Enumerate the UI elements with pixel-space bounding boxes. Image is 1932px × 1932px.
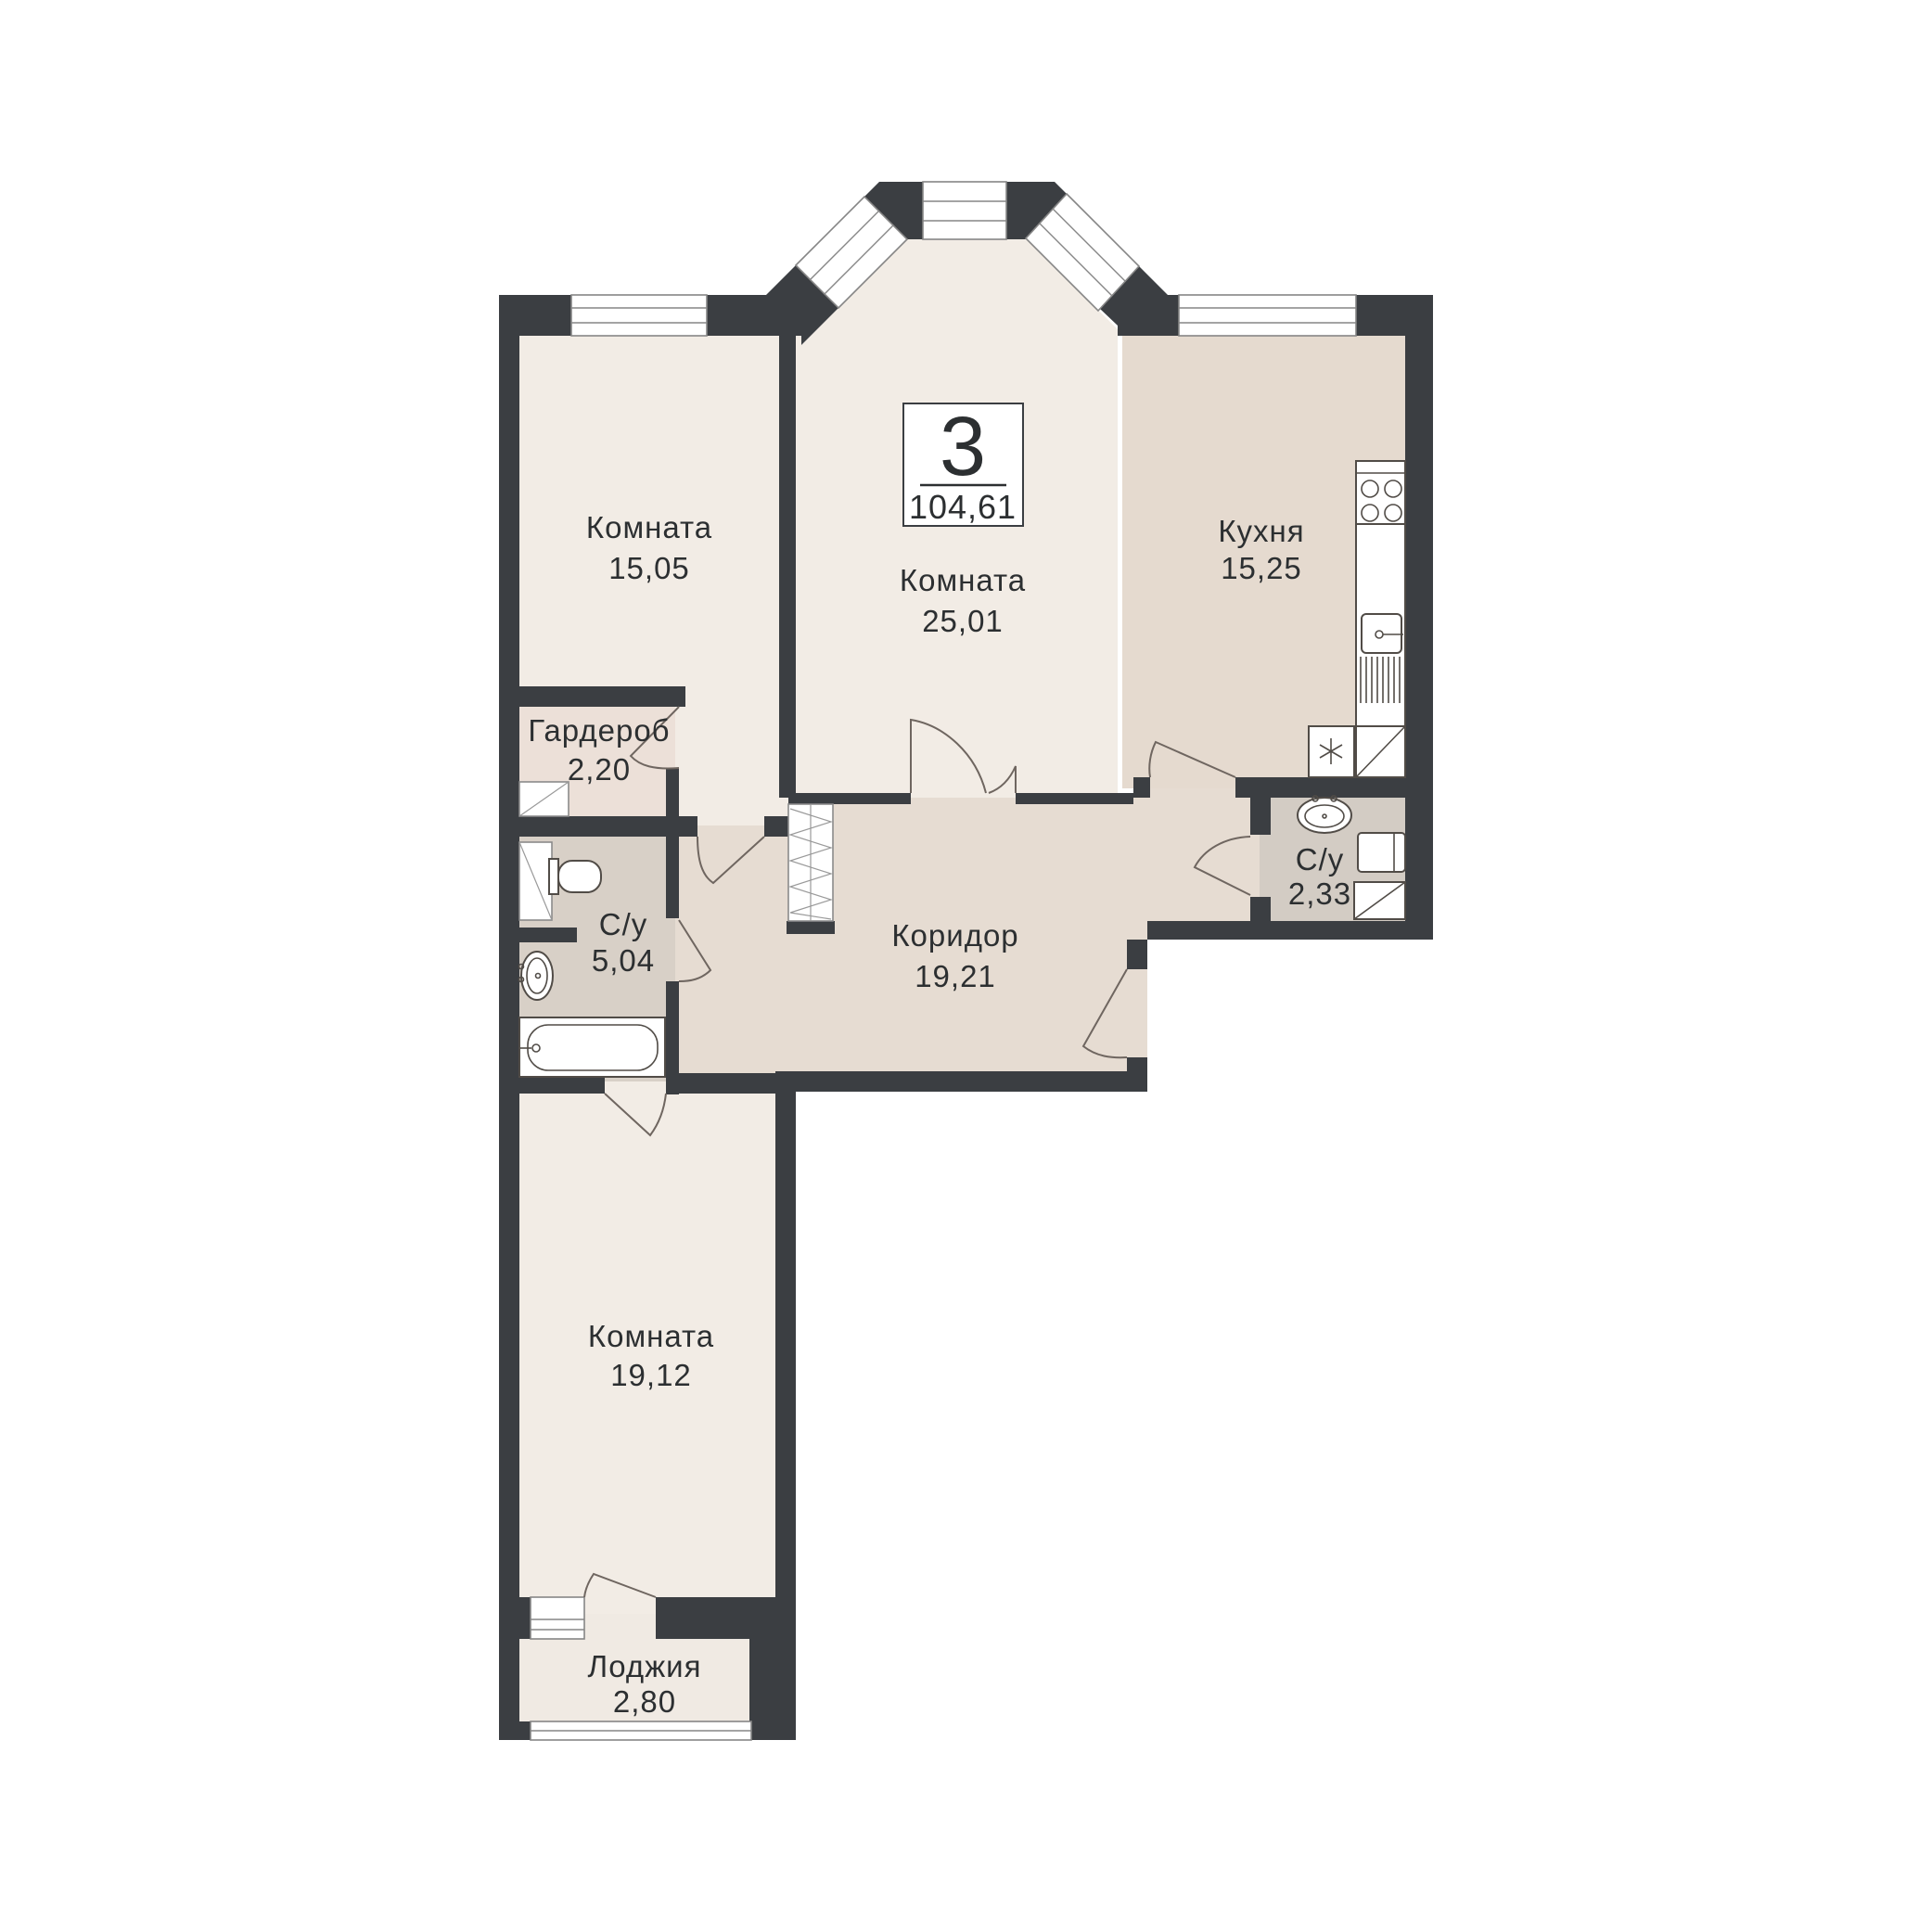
bath-main-label: С/у [599,907,648,941]
wall-stub [787,921,835,934]
unit-rooms-count: 3 [940,401,986,493]
corridor-label: Коридор [891,918,1018,953]
toilet-icon [549,859,558,894]
wall-segment [499,686,685,707]
toilet-bowl [558,861,601,892]
room-25-label: Комната [900,563,1026,597]
stove-icon [1356,461,1405,524]
wall-segment [1235,777,1433,798]
wall-segment [1016,793,1133,804]
wall-stub [518,928,577,942]
wall-segment [516,1721,531,1740]
wall-outer-right [1405,295,1433,940]
kitchen-sink-icon [1362,614,1401,653]
unit-info-box: 3 104,61 [903,401,1023,526]
floor-plan-page: 3 104,61 Комната 15,05 Комната 25,01 Кух… [0,0,1932,1932]
wall-segment [779,315,796,798]
wall-segment [1133,777,1150,798]
wall-segment [666,768,679,918]
unit-total-area: 104,61 [909,488,1017,526]
room-15-area: 15,05 [608,551,690,585]
floor-plan-canvas: 3 104,61 Комната 15,05 Комната 25,01 Кух… [0,0,1932,1932]
bath-main-area: 5,04 [592,943,655,978]
loggia-label: Лоджия [588,1649,702,1683]
washing-machine-icon [1358,833,1405,872]
wall-segment [788,793,911,804]
wall-segment [1147,921,1433,940]
room-19-label: Комната [588,1319,714,1353]
wall-segment [499,1597,531,1639]
wardrobe-area: 2,20 [568,752,631,787]
wall-segment [1250,798,1271,835]
window-icon [571,295,707,336]
bath-guest-area: 2,33 [1288,876,1351,911]
wall-segment [749,1597,796,1740]
kitchen-label: Кухня [1218,514,1304,548]
corridor-area: 19,21 [915,959,996,993]
wall-segment [499,816,697,837]
room-19-area: 19,12 [610,1358,692,1392]
kitchen-area: 15,25 [1221,551,1302,585]
wall-segment [1127,940,1147,969]
wall-segment [781,1071,1147,1092]
window-icon [531,1597,584,1639]
bath-guest-label: С/у [1296,842,1345,876]
room-25-area: 25,01 [922,604,1004,638]
loggia-area: 2,80 [613,1684,676,1719]
wall-segment [775,1071,796,1600]
wall-segment [707,295,772,336]
wall-outer-left [499,295,519,1740]
wardrobe-label: Гардероб [528,713,670,748]
room-15-label: Комната [586,510,712,544]
bay-window-icon [923,182,1006,239]
wall-segment [764,816,788,837]
window-icon [1179,295,1356,336]
